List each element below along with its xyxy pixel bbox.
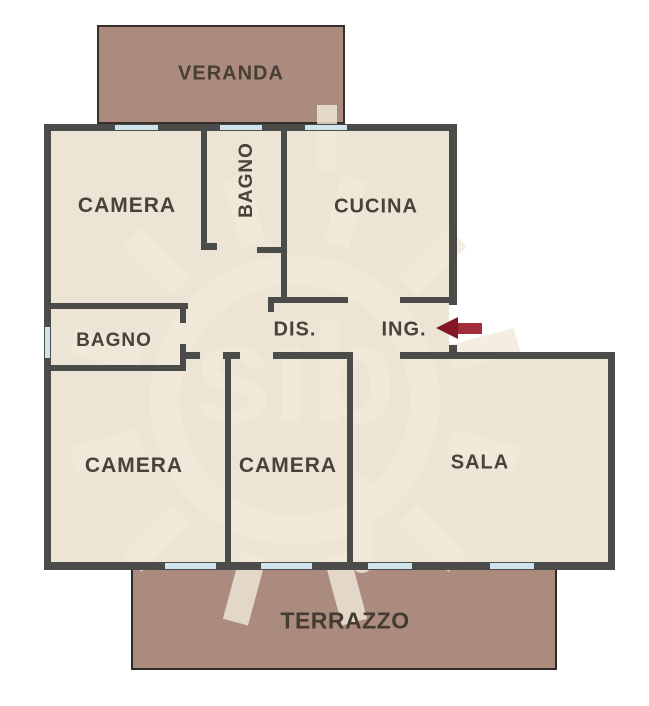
watermark-hook: [351, 478, 373, 573]
window: [368, 562, 412, 570]
room-label-cucina: CUCINA: [334, 196, 418, 219]
wall-segment: [257, 247, 287, 253]
entrance-arrow-shaft: [458, 323, 482, 334]
wall-segment: [449, 352, 615, 359]
room-label-ing: ING.: [381, 319, 426, 342]
wall-segment: [449, 345, 457, 352]
room-label-veranda: VERANDA: [178, 63, 284, 86]
wall-segment: [347, 352, 353, 562]
watermark-bar: [317, 105, 337, 170]
floor-plan: sib VERANDA CAMERA BAGNO CUCINA BAGNO DI…: [0, 0, 649, 706]
window: [261, 562, 312, 570]
window: [220, 124, 262, 131]
entrance-arrow-head: [436, 317, 458, 339]
wall-segment: [281, 131, 287, 297]
wall-segment: [225, 352, 231, 562]
window: [490, 562, 534, 570]
wall-segment: [400, 352, 452, 359]
wall-segment: [449, 124, 457, 305]
wall-segment: [180, 303, 186, 323]
room-label-bagno-top: BAGNO: [236, 142, 258, 218]
room-label-camera-sw: CAMERA: [85, 454, 183, 478]
window: [165, 562, 216, 570]
wall-segment: [186, 352, 200, 359]
room-label-terrazzo: TERRAZZO: [280, 608, 409, 635]
wall-segment: [400, 297, 452, 303]
wall-segment: [201, 243, 217, 250]
wall-segment: [268, 297, 348, 303]
room-label-dis: DIS.: [274, 319, 317, 342]
room-label-camera-nw: CAMERA: [78, 194, 176, 218]
wall-segment: [201, 131, 207, 246]
window: [305, 124, 347, 131]
window: [44, 327, 51, 358]
wall-segment: [50, 303, 188, 309]
wall-segment: [50, 365, 186, 371]
room-label-sala: SALA: [451, 452, 509, 475]
room-label-bagno-left: BAGNO: [76, 330, 152, 352]
window: [115, 124, 158, 131]
wall-segment: [273, 352, 353, 359]
wall-segment: [268, 297, 274, 312]
room-label-camera-s: CAMERA: [239, 454, 337, 478]
wall-segment: [608, 352, 615, 570]
